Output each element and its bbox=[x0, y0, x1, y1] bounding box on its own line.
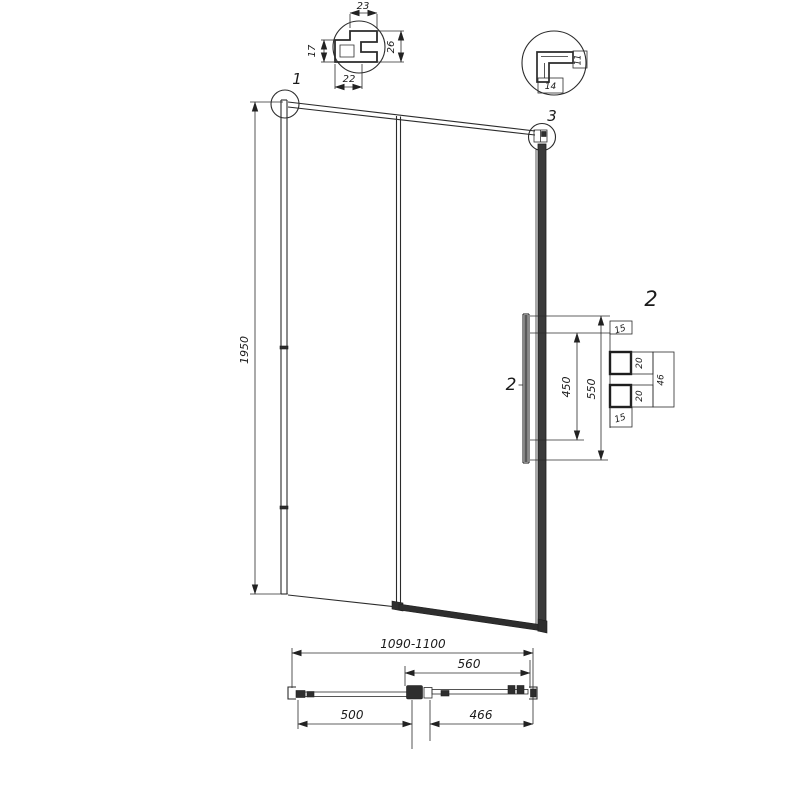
elevation-view: 1 3 bbox=[238, 70, 674, 633]
dim-1090-1100-label: 1090-1100 bbox=[380, 637, 446, 651]
top-corner-fitting bbox=[534, 130, 547, 142]
detail-1-circle bbox=[333, 21, 385, 73]
left-wall-profile-plan bbox=[288, 687, 296, 699]
dim-15-top-label: 15 bbox=[613, 323, 627, 336]
panel-overlap-edge bbox=[397, 116, 401, 606]
fixed-panel-clamp bbox=[296, 691, 305, 698]
dim-26-label: 26 bbox=[386, 41, 397, 54]
dim-550-label: 550 bbox=[585, 379, 598, 400]
dim-500-label: 500 bbox=[341, 708, 364, 722]
corner-profile-inner-lines bbox=[541, 57, 568, 79]
handle-knob-top-section bbox=[610, 352, 631, 374]
dim-450-label: 450 bbox=[560, 377, 573, 398]
fixed-glass-plan bbox=[305, 692, 421, 697]
plan-door-assembly bbox=[288, 686, 537, 700]
left-wall-profile bbox=[280, 100, 288, 594]
dim-23-label: 23 bbox=[357, 1, 370, 12]
callout-3-label: 3 bbox=[547, 107, 557, 125]
shower-door-drawing: 23 17 26 22 11 bbox=[0, 0, 800, 800]
right-frame-foot bbox=[538, 619, 547, 633]
dimension-detail1-top: 23 bbox=[350, 1, 377, 28]
dimension-door-560: 560 bbox=[405, 657, 530, 673]
dim-22-label: 22 bbox=[343, 74, 356, 85]
wall-bracket-upper bbox=[280, 346, 288, 349]
dimension-detail1-bottom: 22 bbox=[335, 64, 362, 89]
dim-20-bottom-label: 20 bbox=[635, 390, 645, 402]
dim-466-label: 466 bbox=[470, 708, 493, 722]
dim-11-label: 11 bbox=[574, 55, 584, 66]
detail-3-profile-view: 11 14 bbox=[522, 31, 587, 95]
door-handle bbox=[519, 314, 530, 463]
dim-14-label: 14 bbox=[545, 82, 557, 92]
dimension-handle-group: 450 550 15 20 46 20 15 bbox=[530, 316, 674, 460]
dim-1950-label: 1950 bbox=[238, 336, 251, 364]
top-rail bbox=[288, 102, 535, 135]
bottom-rail bbox=[288, 595, 547, 633]
detail-1-profile-view: 23 17 26 22 bbox=[307, 1, 404, 89]
roller-right-1 bbox=[508, 686, 515, 694]
dim-46-label: 46 bbox=[657, 374, 667, 386]
dimension-fixed-500: 500 bbox=[298, 708, 412, 724]
sliding-panel-clamp bbox=[441, 691, 449, 697]
center-roller-carriage bbox=[407, 686, 423, 700]
dimension-detail1-left: 17 bbox=[307, 40, 334, 62]
sliding-bottom-rail bbox=[399, 604, 543, 631]
dim-17-label: 17 bbox=[307, 44, 318, 57]
technical-drawing-page: 23 17 26 22 11 bbox=[0, 0, 800, 800]
dimension-glass-466: 466 bbox=[430, 708, 533, 724]
handle-knob-bottom-section bbox=[610, 385, 631, 407]
roller-right-2 bbox=[517, 686, 524, 694]
callout-2-handle-label: 2 bbox=[506, 375, 517, 395]
callout-2-detail-label: 2 bbox=[644, 287, 657, 311]
center-bracket bbox=[424, 688, 432, 699]
dim-15-bottom-label: 15 bbox=[613, 412, 627, 425]
callout-1-circle bbox=[271, 90, 299, 118]
right-wall-profile bbox=[536, 144, 546, 631]
wall-bracket-lower bbox=[280, 506, 288, 509]
dim-560-label: 560 bbox=[458, 657, 481, 671]
right-end-block bbox=[531, 689, 537, 697]
dimension-detail3-bottom: 14 bbox=[538, 78, 563, 93]
dimension-overall-width: 1090-1100 bbox=[292, 637, 533, 653]
plan-view: 1090-1100 560 500 bbox=[288, 637, 537, 749]
wall-profile-inner-lines bbox=[340, 42, 361, 57]
callout-1-label: 1 bbox=[292, 70, 302, 88]
dim-20-top-label: 20 bbox=[635, 357, 645, 369]
